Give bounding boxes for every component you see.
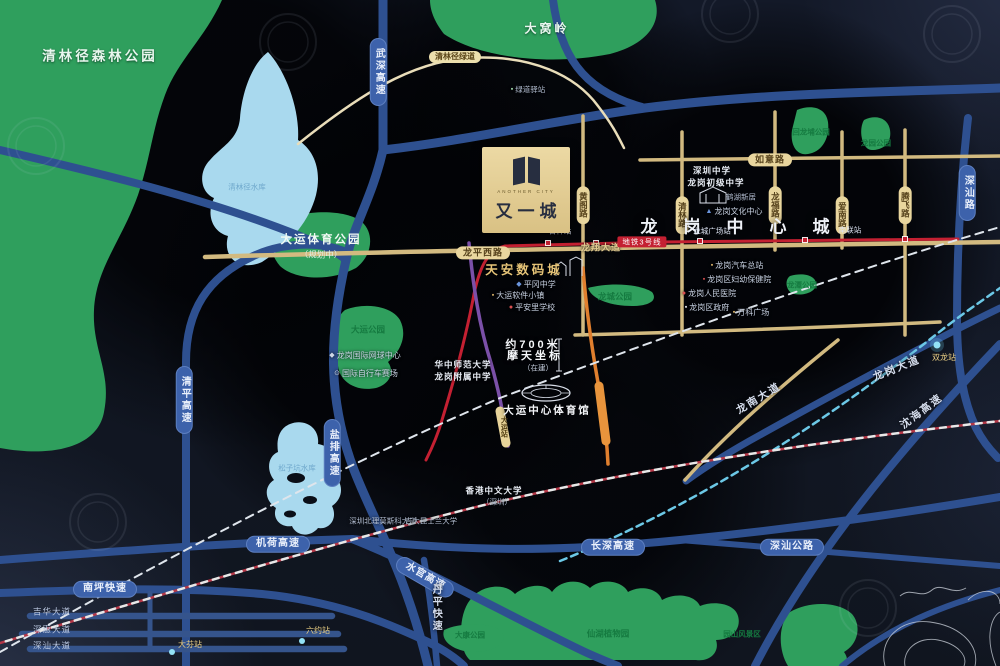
park-longcheng: 龙城公园: [598, 292, 632, 303]
park-xianhu: 仙湖植物园: [587, 629, 630, 640]
station-dafen-text: 大芬站: [178, 640, 202, 649]
road-longxiang-ave-text: 龙翔大道: [581, 242, 621, 252]
park-longtan: 龙潭公园: [787, 280, 817, 289]
poi-pinggang-school: ◆平冈中学: [516, 280, 555, 290]
poi-district-government: ▪龙岗区政府: [685, 303, 729, 313]
road-greenway-text: 清林径绿道: [435, 52, 475, 61]
poi-cuhk-line2: （深圳）: [482, 497, 512, 506]
station-dafen: 大芬站: [178, 640, 202, 650]
road-yanpai-expwy-text: 盐排高速: [327, 429, 338, 477]
road-jihua-ave: 吉华大道: [33, 607, 71, 618]
park-dayun-sports-sub-text: （规划中）: [300, 250, 343, 260]
road-greenway: 清林径绿道: [429, 51, 481, 63]
road-shenshan-hwy-text: 深汕公路: [770, 541, 814, 552]
road-huangge-text: 黄阁路: [578, 192, 588, 218]
poi-ccnu-line1-text: 华中师范大学: [434, 360, 491, 370]
park-longcheng-text: 龙城公园: [598, 292, 632, 302]
road-longping-west: 龙平西路: [456, 246, 510, 259]
road-changshen-expwy-text: 长深高速: [591, 541, 635, 552]
park-qinglinjing: 清林径森林公园: [42, 49, 158, 66]
station-liuyue-text: 六约站: [306, 626, 330, 635]
poi-cuhk-line2-text: （深圳）: [482, 497, 512, 506]
station-shuanglong: 双龙站: [932, 353, 956, 363]
poi-bus-terminal-icon: ▪: [711, 262, 713, 269]
poi-tianan-cyber-park: 天安数码城: [485, 263, 563, 279]
poi-ccnu-line2-text: 龙岗附属中学: [434, 372, 491, 382]
station-liuyue: 六约站: [306, 626, 330, 636]
poi-maternity-hospital: ▪龙岗区妇幼保健院: [703, 275, 771, 285]
poi-culture-center-text: 龙岗文化中心: [714, 207, 762, 216]
road-nanping-expwy-text: 南坪快速: [83, 583, 127, 594]
poi-ccnu-line1: 华中师范大学: [434, 360, 491, 371]
map-artwork: [0, 0, 1000, 666]
road-tengfei: 腾飞路: [899, 186, 912, 224]
station-shuanglong-text: 双龙站: [932, 353, 956, 362]
road-shenshan-rd: 深汕路: [959, 165, 976, 221]
lake-songzikeng: 松子坑水库: [278, 463, 316, 472]
station-nanlian: 南联站: [839, 225, 862, 234]
poi-maternity-hospital-icon: ▪: [703, 276, 705, 283]
poi-hehu-residence: 鹤湖新居: [726, 192, 756, 201]
poi-jlu-university: 吉大昆士兰大学: [405, 516, 458, 525]
poi-pinganli-school-text: 平安里学校: [515, 303, 555, 312]
road-changshen-expwy: 长深高速: [581, 539, 645, 556]
poi-ccnu-line2: 龙岗附属中学: [434, 372, 491, 383]
contour-art: [884, 587, 1000, 666]
road-nanping-expwy: 南坪快速: [73, 581, 137, 598]
lake-qinglinjing: 清林径水库: [228, 182, 266, 191]
road-jihe-expwy-text: 机荷高速: [256, 538, 300, 549]
road-ruyi-text: 如意路: [755, 154, 785, 164]
road-longnan-shape: [685, 340, 838, 480]
poi-software-town-text: 大运软件小镇: [496, 291, 544, 300]
park-huilongpu-text: 回龙埔公园: [792, 127, 830, 136]
station-dayun: 大运站: [499, 417, 508, 438]
road-north-arc: [383, 88, 1000, 150]
road-shenshan-ave-text: 深汕大道: [33, 641, 71, 651]
road-jihua-ave-text: 吉华大道: [33, 607, 71, 617]
park-xianhu-shape: [461, 582, 739, 661]
road-shenshan-rd-text: 深汕路: [962, 175, 973, 211]
poi-pinganli-school: ●平安里学校: [509, 303, 555, 313]
poi-cycling-track: ⊙国际自行车赛场: [334, 369, 398, 379]
station-dayun-text: 大运站: [500, 417, 507, 438]
road-south-grid: [575, 322, 940, 335]
road-jihe-expwy: 机荷高速: [246, 536, 310, 553]
script-squiggle: [900, 587, 966, 596]
park-yuanshan-text: 园山风景区: [723, 629, 761, 638]
project-name: 又一城: [491, 197, 562, 222]
park-dayun-sports-text: 大运体育公园: [281, 234, 362, 246]
park-dayun-sports-sub: （规划中）: [300, 250, 343, 261]
poi-shenzhen-middle-1: 深圳中学: [693, 166, 731, 177]
park-dawoling-text: 大窝岭: [524, 22, 569, 36]
poi-district-government-text: 龙岗区政府: [689, 303, 729, 312]
poi-pinganli-school-icon: ●: [509, 304, 513, 311]
poi-bus-terminal: ▪龙岗汽车总站: [711, 261, 763, 271]
road-ruyi-shape: [640, 156, 1000, 160]
poi-shenzhen-middle-1-text: 深圳中学: [693, 166, 731, 176]
park-longtan-text: 龙潭公园: [787, 280, 817, 289]
poi-dayun-stadium-text: 大运中心体育馆: [503, 404, 591, 416]
park-dayun: 大运公园: [351, 325, 385, 336]
city-longgang-center: 龙岗中心城: [641, 216, 856, 237]
poi-cycling-track-text: 国际自行车赛场: [342, 369, 398, 378]
poi-shenzhen-middle-2-text: 龙岗初级中学: [687, 178, 744, 188]
park-qinglinjing-text: 清林径森林公园: [42, 49, 158, 64]
poi-culture-center-icon: ▲: [706, 208, 713, 215]
park-huilongpu: 回龙埔公园: [792, 127, 830, 136]
poi-vanke-plaza-text: 万科广场: [737, 308, 769, 317]
road-qingping-expwy: 清平高速: [176, 366, 193, 434]
poi-pinggang-school-text: 平冈中学: [524, 280, 556, 289]
metro-line3-banner-text: 地铁3号线: [622, 237, 661, 246]
station-capsule-orange: [599, 386, 606, 441]
poi-greenway-stop-text: 绿道驿站: [515, 85, 545, 94]
poi-dayun-stadium: 大运中心体育馆: [503, 404, 591, 417]
poi-700m-line2-text: 摩天坐标: [507, 350, 563, 362]
station-nanlian-text: 南联站: [839, 225, 862, 234]
map-canvas[interactable]: ANOTHER CITY 又一城 清林径森林公园清林径水库大窝岭大运体育公园（规…: [0, 0, 1000, 666]
hehu-sketch: [700, 187, 726, 203]
park-dayun-sports: 大运体育公园: [281, 233, 362, 247]
poi-shenzhen-middle-2: 龙岗初级中学: [687, 178, 744, 189]
road-longfu-text: 龙福路: [770, 192, 780, 218]
road-longping-west-text: 龙平西路: [463, 247, 503, 257]
park-longyuan-text: 龙园公园: [861, 138, 891, 147]
poi-tennis-center-icon: ◆: [329, 352, 334, 359]
road-huangge: 黄阁路: [577, 186, 590, 224]
park-dayun-text: 大运公园: [351, 325, 385, 335]
poi-district-government-icon: ▪: [685, 304, 687, 311]
road-qingping-expwy-text: 清平高速: [179, 376, 190, 424]
road-ruyi: 如意路: [748, 153, 792, 166]
project-tagline: ANOTHER CITY: [497, 189, 555, 194]
poi-pinggang-school-icon: ◆: [516, 281, 521, 288]
poi-maternity-hospital-text: 龙岗区妇幼保健院: [707, 275, 771, 284]
poi-jlu-university-text: 吉大昆士兰大学: [405, 516, 458, 525]
water-shapes: [202, 52, 341, 535]
poi-tennis-center-text: 龙岗国际网球中心: [337, 351, 401, 360]
road-danping-expwy-text: 丹平快速: [430, 584, 441, 632]
poi-greenway-stop: ▪绿道驿站: [511, 85, 545, 95]
lake-songzikeng-text: 松子坑水库: [278, 463, 316, 472]
road-shenhui-ave-text: 深惠大道: [33, 625, 71, 635]
metro-line3-banner: 地铁3号线: [617, 236, 666, 247]
poi-software-town-icon: ▪: [492, 292, 494, 299]
poi-cuhk-line1: 香港中文大学: [465, 486, 522, 497]
poi-tennis-center: ◆龙岗国际网球中心: [329, 351, 400, 361]
park-dakang-text: 大康公园: [455, 630, 485, 639]
poi-700m-sub-text: （在建）: [523, 363, 553, 372]
poi-culture-center: ▲龙岗文化中心: [706, 207, 763, 217]
road-yanpai-expwy: 盐排高速: [324, 419, 341, 487]
project-logo-icon: [513, 158, 540, 186]
poi-cuhk-line1-text: 香港中文大学: [465, 486, 522, 496]
project-card[interactable]: ANOTHER CITY 又一城: [482, 147, 570, 233]
park-dawoling: 大窝岭: [524, 22, 569, 37]
poi-hehu-residence-text: 鹤湖新居: [726, 192, 756, 201]
road-wushen-expwy: 武深高速: [370, 38, 387, 106]
poi-vanke-plaza: ▪万科广场: [733, 308, 769, 318]
park-longyuan: 龙园公园: [861, 138, 891, 147]
poi-peoples-hospital-icon: ●: [682, 290, 686, 297]
poi-cycling-track-icon: ⊙: [334, 370, 340, 377]
road-danping-expwy: 丹平快速: [429, 584, 442, 632]
station-longcheng-square: 龙城广场站: [693, 226, 731, 235]
poi-software-town: ▪大运软件小镇: [492, 291, 544, 301]
park-yuanshan: 园山风景区: [723, 629, 761, 638]
poi-700m-line2: 摩天坐标: [507, 350, 563, 364]
poi-peoples-hospital-text: 龙岗人民医院: [688, 289, 736, 298]
road-longxiang-ave: 龙翔大道: [581, 242, 621, 253]
poi-peoples-hospital: ●龙岗人民医院: [682, 289, 736, 299]
city-longgang-center-text: 龙岗中心城: [641, 217, 856, 236]
park-yuanshan-shape: [781, 604, 858, 666]
road-shenshan-hwy-shape: [680, 540, 1000, 566]
road-wushen-expwy-text: 武深高速: [373, 48, 384, 96]
road-tengfei-text: 腾飞路: [900, 192, 910, 218]
poi-bus-terminal-text: 龙岗汽车总站: [715, 261, 763, 270]
road-shenshan-hwy: 深汕公路: [760, 539, 824, 556]
poi-vanke-plaza-icon: ▪: [733, 309, 735, 316]
station-longcheng-square-text: 龙城广场站: [693, 226, 731, 235]
poi-700m-sub: （在建）: [523, 363, 553, 372]
road-shenhui-ave: 深惠大道: [33, 625, 71, 636]
poi-tianan-cyber-park-text: 天安数码城: [485, 263, 563, 277]
lake-qinglinjing-text: 清林径水库: [228, 182, 266, 191]
road-shenshan-ave: 深汕大道: [33, 641, 71, 652]
poi-greenway-stop-icon: ▪: [511, 86, 513, 93]
park-dakang: 大康公园: [455, 630, 485, 639]
park-xianhu-text: 仙湖植物园: [587, 629, 630, 639]
